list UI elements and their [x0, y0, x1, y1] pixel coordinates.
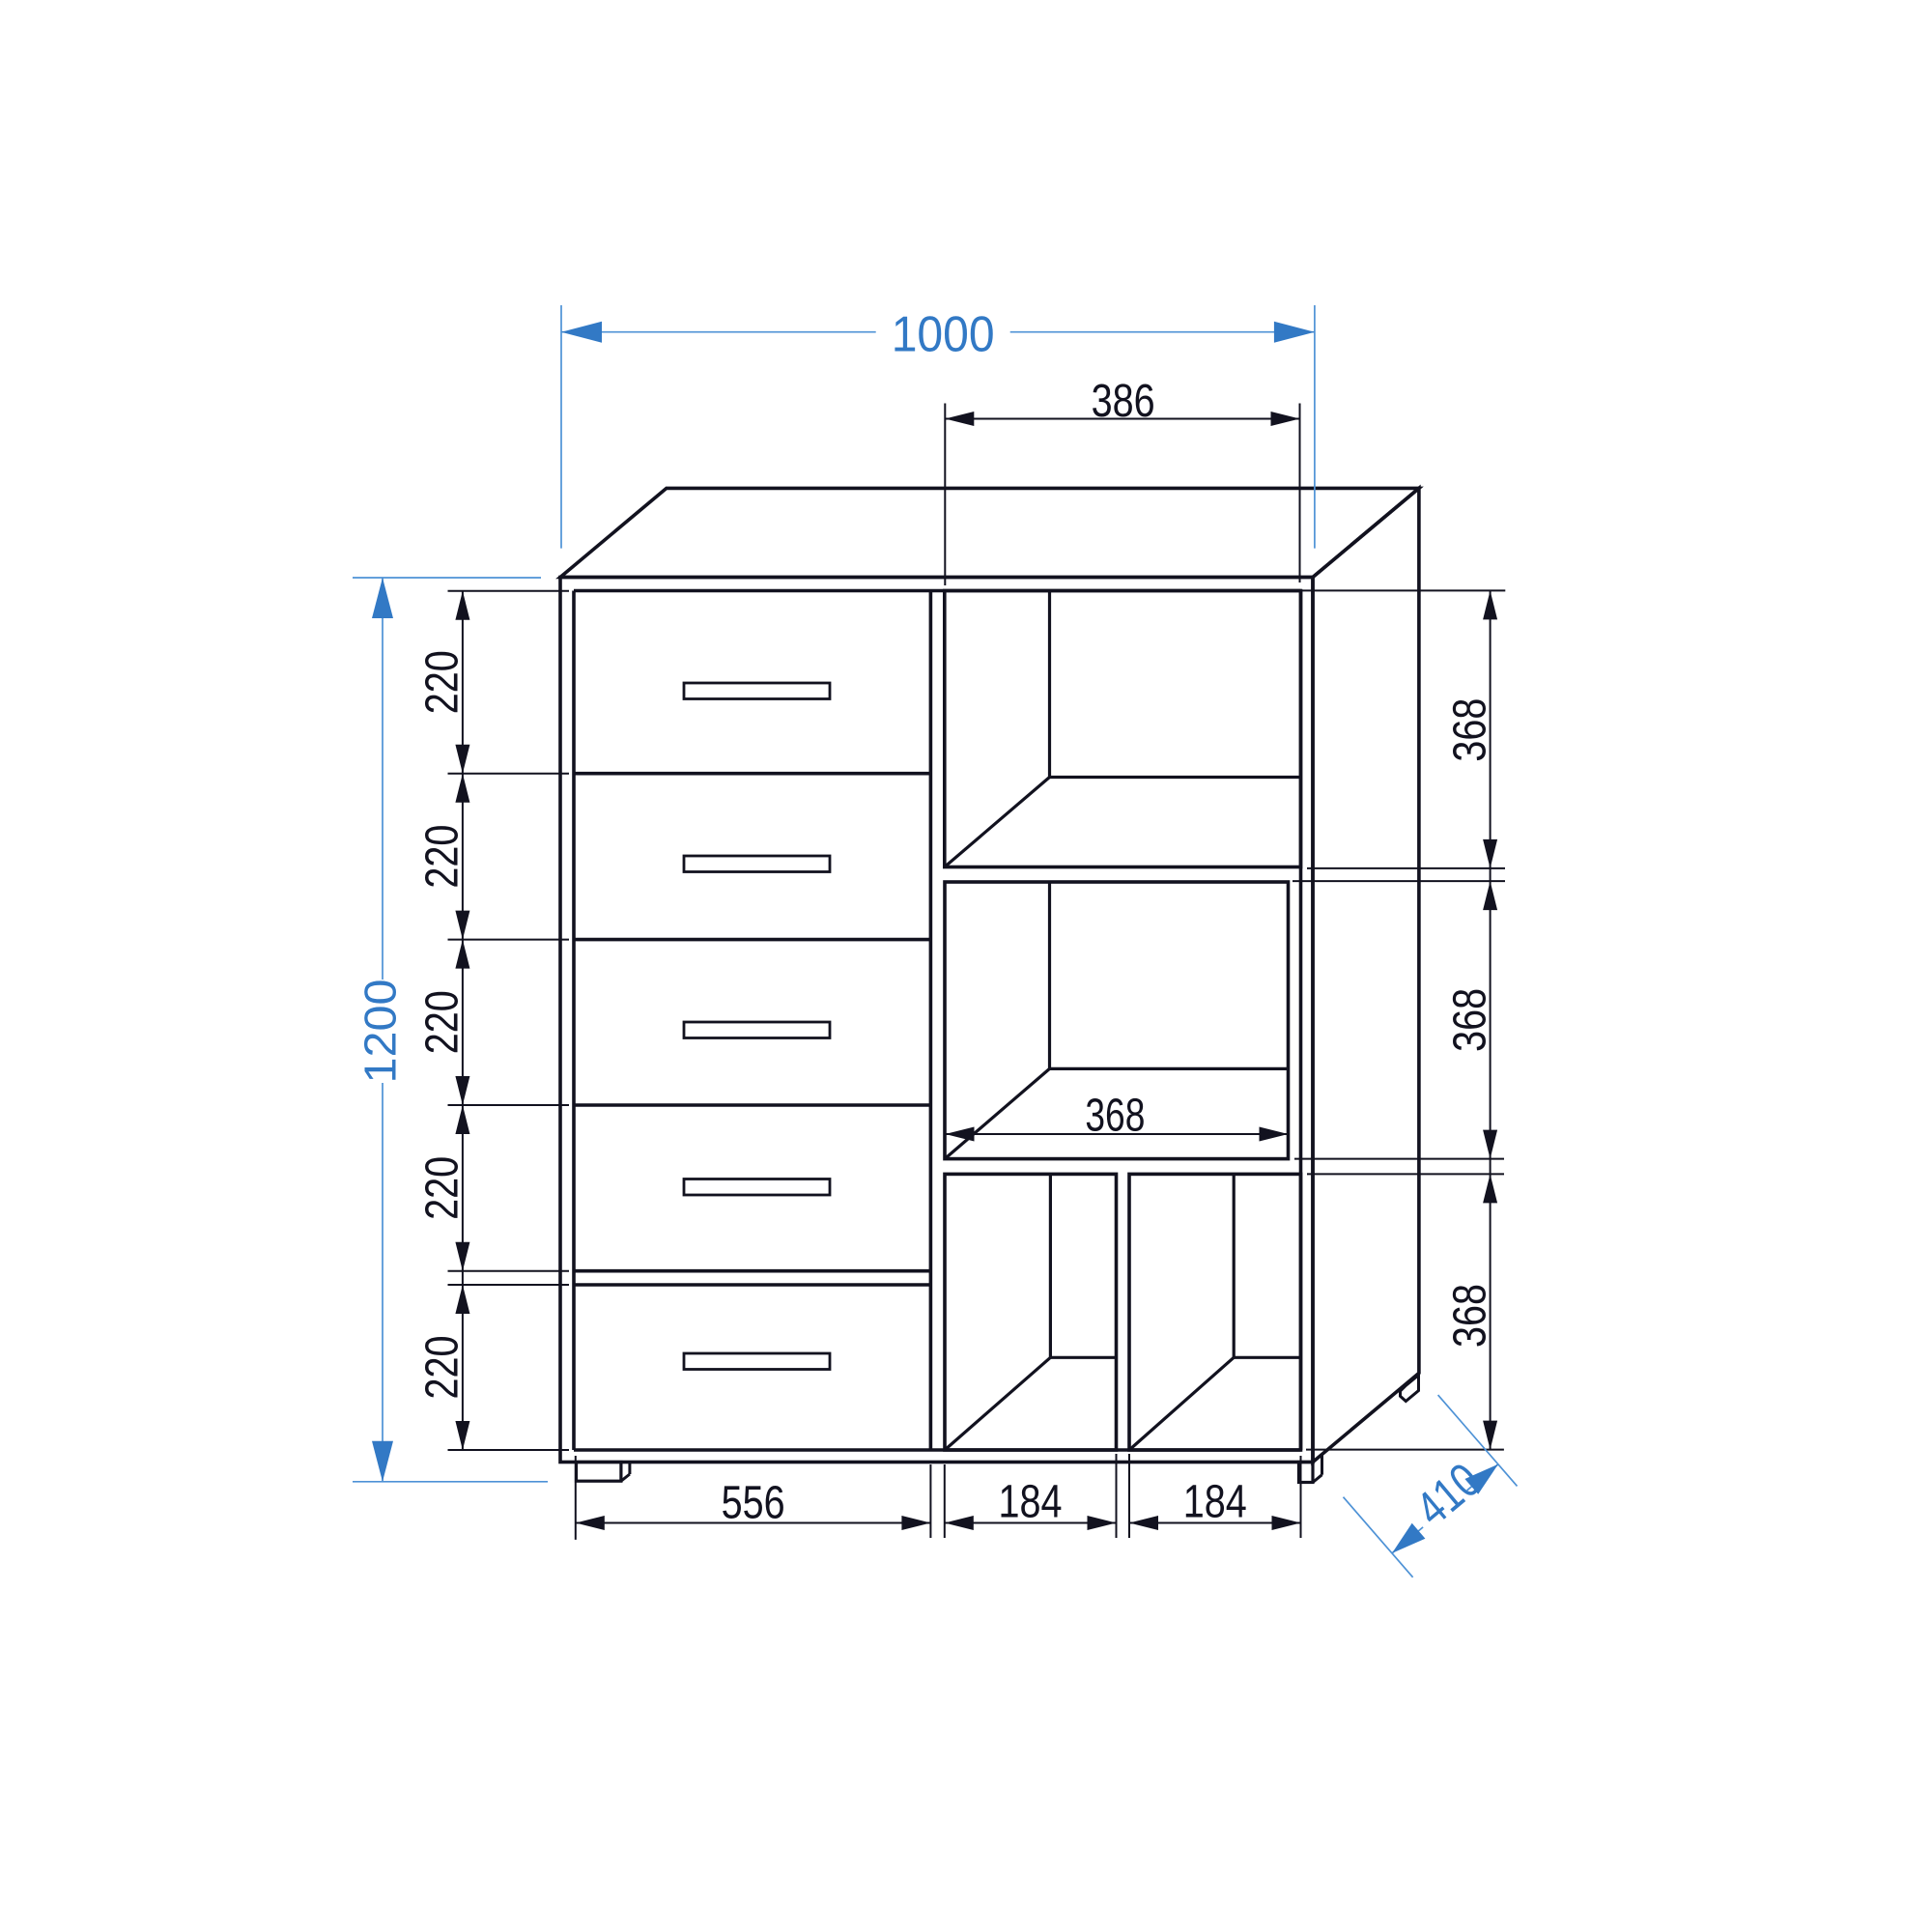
- svg-text:1200: 1200: [355, 980, 406, 1084]
- svg-text:368: 368: [1445, 698, 1496, 762]
- svg-text:368: 368: [1085, 1091, 1145, 1142]
- svg-text:220: 220: [416, 1156, 468, 1220]
- svg-text:368: 368: [1445, 1284, 1496, 1348]
- svg-text:368: 368: [1445, 988, 1496, 1052]
- svg-text:1000: 1000: [892, 307, 995, 363]
- svg-text:220: 220: [416, 650, 468, 714]
- svg-text:556: 556: [722, 1477, 785, 1528]
- svg-text:184: 184: [999, 1477, 1063, 1528]
- svg-text:220: 220: [416, 990, 468, 1054]
- svg-text:220: 220: [416, 825, 468, 889]
- svg-text:386: 386: [1092, 376, 1155, 427]
- svg-text:184: 184: [1183, 1477, 1247, 1528]
- svg-text:220: 220: [416, 1336, 468, 1400]
